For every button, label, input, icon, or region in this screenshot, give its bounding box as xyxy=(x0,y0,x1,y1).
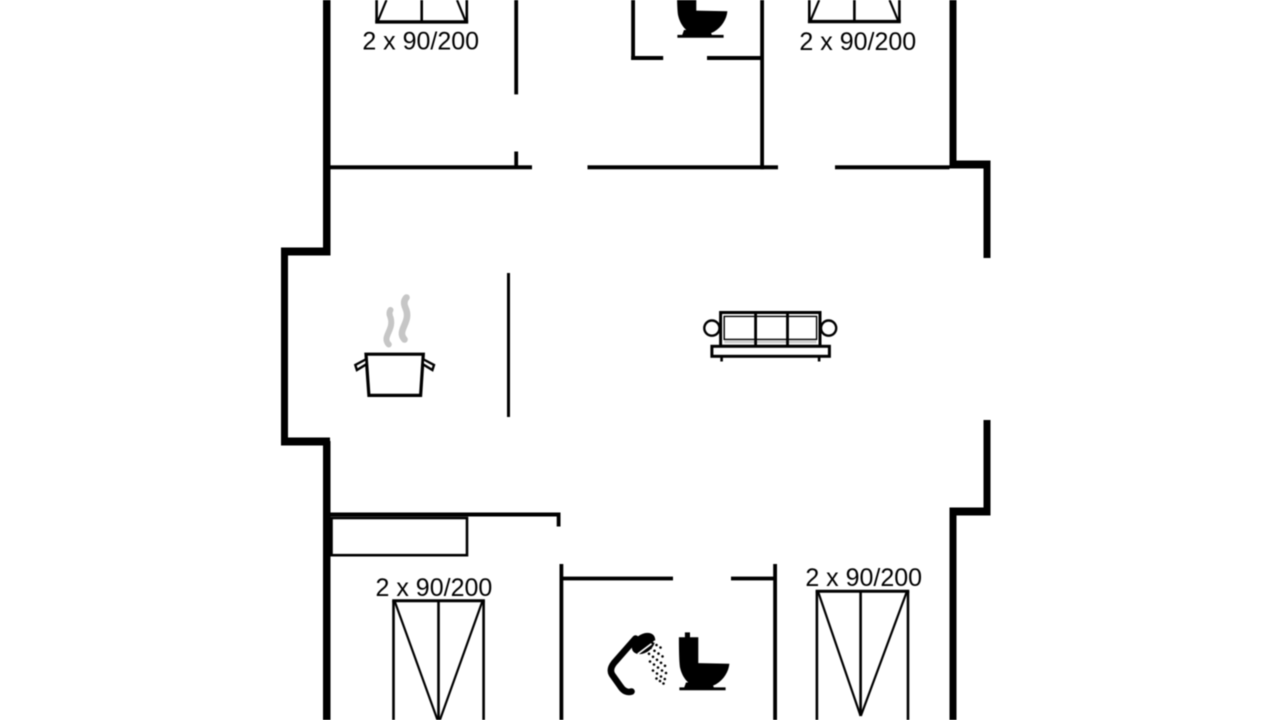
svg-text:2 x 90/200: 2 x 90/200 xyxy=(799,28,916,56)
svg-text:2 x 90/200: 2 x 90/200 xyxy=(376,574,493,602)
svg-text:2 x 90/200: 2 x 90/200 xyxy=(362,28,479,56)
svg-text:2 x 90/200: 2 x 90/200 xyxy=(805,564,922,592)
